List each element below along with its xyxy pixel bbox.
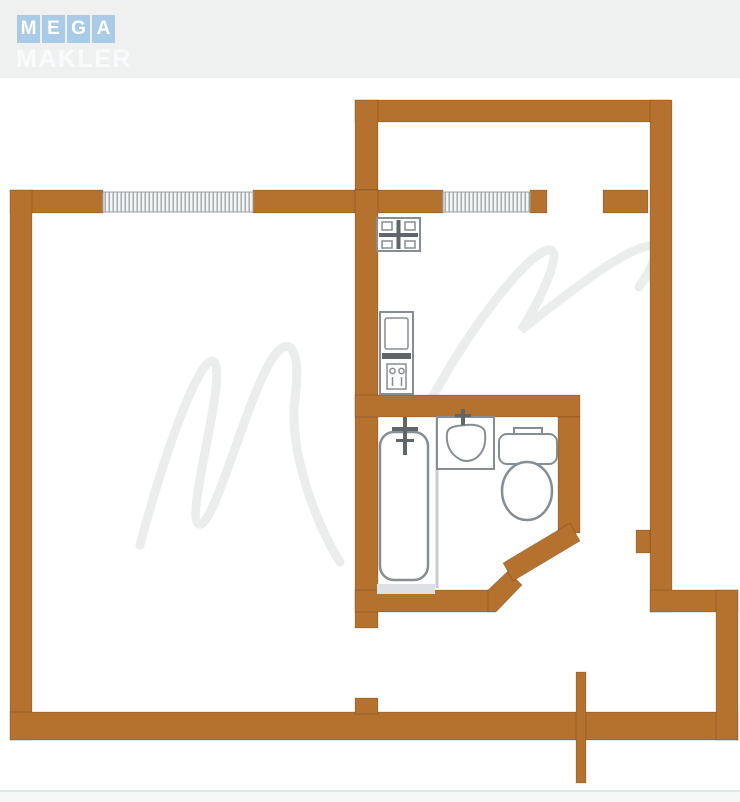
balcony-top-wall xyxy=(355,100,670,122)
right-wall xyxy=(650,100,672,612)
top-wall-c xyxy=(530,190,547,213)
balcony-left-wall xyxy=(355,100,378,193)
bottom-wall xyxy=(10,712,738,740)
bathroom-door-leaf xyxy=(503,523,580,581)
logo-word: MAKLER xyxy=(16,45,132,74)
stove-icon xyxy=(377,218,420,251)
washbasin-icon xyxy=(437,409,494,469)
bathtub-icon xyxy=(377,417,437,594)
logo-tiles: M E G A xyxy=(17,15,132,43)
top-wall-b xyxy=(253,190,443,213)
right-lower-wall xyxy=(716,590,738,740)
logo-tile-m: M xyxy=(17,15,40,43)
left-wall xyxy=(10,190,32,740)
entrance-door-line xyxy=(576,672,586,783)
right-wall-nub xyxy=(636,530,650,553)
interior-wall-stub xyxy=(355,698,378,714)
kitchen-window xyxy=(443,192,530,212)
bathroom-right-wall xyxy=(558,417,580,533)
living-room-window xyxy=(103,192,253,212)
section-divider xyxy=(0,790,740,802)
watermark-header: M E G A MAKLER xyxy=(0,0,740,78)
kitchen-sink-icon xyxy=(380,312,413,394)
mega-makler-logo: M E G A MAKLER xyxy=(17,15,132,74)
floor-plan xyxy=(0,0,740,800)
logo-tile-e: E xyxy=(42,15,65,43)
logo-tile-g: G xyxy=(67,15,90,43)
logo-tile-a: A xyxy=(92,15,115,43)
toilet-icon xyxy=(499,428,557,520)
bathroom-top-wall xyxy=(355,395,580,417)
top-wall-d xyxy=(603,190,648,213)
